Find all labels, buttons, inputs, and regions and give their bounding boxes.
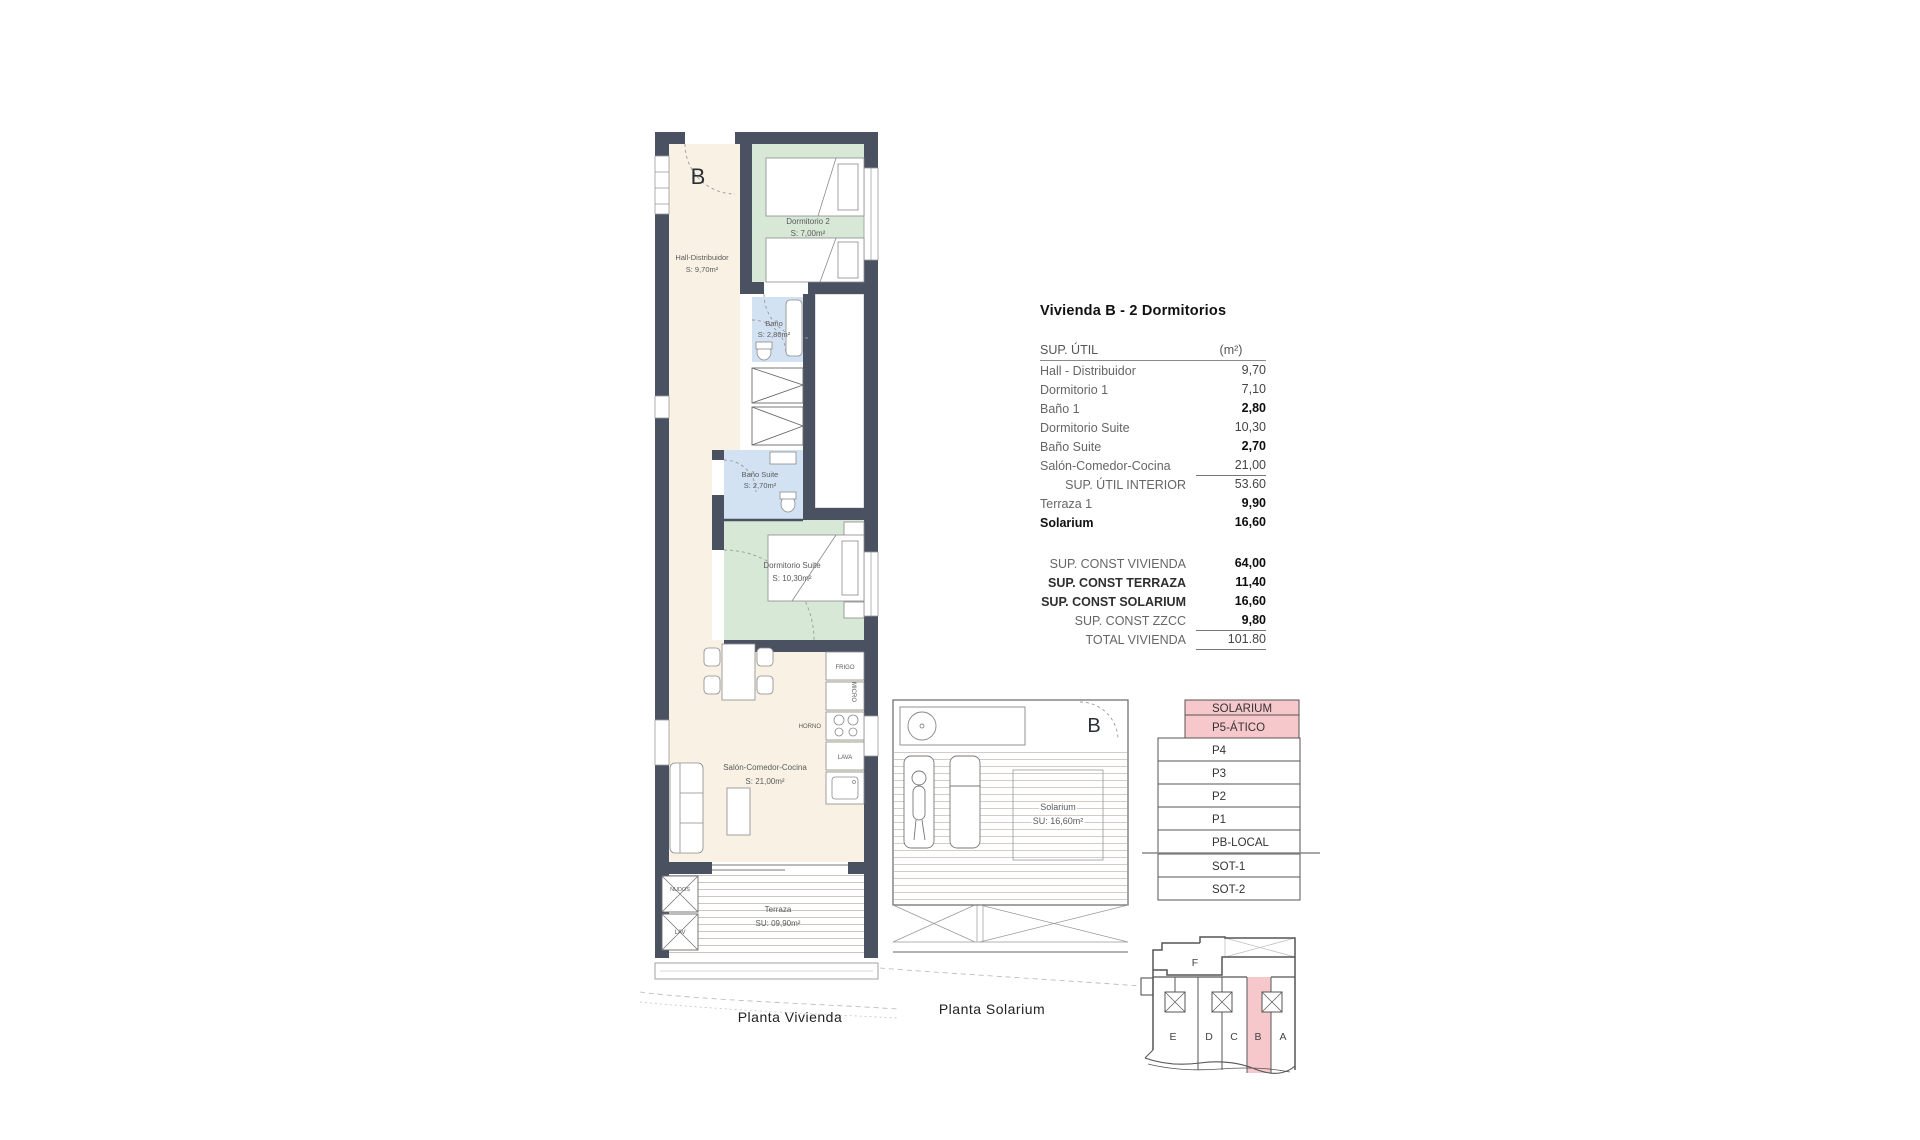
row-value: 2,80 (1196, 399, 1266, 418)
row-value: 21,00 (1196, 456, 1266, 476)
row-label: SUP. CONST SOLARIUM (1040, 595, 1196, 609)
table-row: Salón-Comedor-Cocina 21,00 (1040, 456, 1266, 475)
level-p2: P2 (1212, 791, 1226, 803)
row-value: 53.60 (1196, 475, 1266, 494)
keyplan-unit-a: A (1279, 1031, 1286, 1043)
table-row: TOTAL VIVIENDA 101.80 (1040, 630, 1266, 649)
row-label: Solarium (1040, 516, 1196, 530)
row-value: 9,90 (1196, 494, 1266, 513)
row-value: 64,00 (1196, 554, 1266, 573)
kitchen-frigo-label: FRIGO (836, 665, 855, 671)
table-row: Dormitorio Suite 10,30 (1040, 418, 1266, 437)
table-row: SUP. CONST TERRAZA 11,40 (1040, 573, 1266, 592)
hall-area: S: 9,70m² (686, 265, 719, 274)
table-header-label: SUP. ÚTIL (1040, 343, 1098, 357)
row-label: Hall - Distribuidor (1040, 364, 1196, 378)
row-value: 2,70 (1196, 437, 1266, 456)
row-label: SUP. CONST ZZCC (1040, 614, 1196, 628)
row-value: 16,60 (1196, 592, 1266, 611)
area-table: Vivienda B - 2 Dormitorios SUP. ÚTIL (m²… (1040, 303, 1266, 649)
banosuite-area: S: 2,70m² (744, 481, 777, 490)
row-label: Dormitorio Suite (1040, 421, 1196, 435)
keyplan-label-f: F (1192, 957, 1198, 969)
kitchen-horno-label: HORNO (799, 724, 822, 730)
level-p1: P1 (1212, 814, 1226, 826)
plan-caption: Planta Vivienda (738, 1009, 843, 1025)
banosuite-name: Baño Suite (742, 470, 779, 479)
level-p3: P3 (1212, 768, 1226, 780)
hall-name: Hall-Distribuidor (675, 253, 729, 262)
key-plan: F E D C B A (1140, 930, 1360, 1115)
table-row: SUP. CONST SOLARIUM 16,60 (1040, 592, 1266, 611)
solarium-caption: Planta Solarium (939, 1001, 1045, 1017)
wardrobes (752, 368, 803, 445)
solarium-name: Solarium (1040, 802, 1076, 812)
table-rows: Hall - Distribuidor 9,70 Dormitorio 1 7,… (1040, 361, 1266, 649)
keyplan-unit-c: C (1230, 1031, 1238, 1043)
table-row: Dormitorio 1 7,10 (1040, 380, 1266, 399)
table-row: Terraza 1 9,90 (1040, 494, 1266, 513)
bano1-name: Baño (765, 319, 783, 328)
keyplan-unit-b-highlight (1247, 977, 1271, 1073)
solarium-area: SU: 16,60m² (1033, 816, 1084, 826)
level-sot2: SOT-2 (1212, 884, 1245, 896)
row-label: Salón-Comedor-Cocina (1040, 459, 1196, 473)
plan-unit-letter: B (691, 164, 706, 189)
table-header: SUP. ÚTIL (m²) (1040, 343, 1266, 361)
solarium-unit-letter: B (1087, 715, 1100, 737)
table-row: SUP. CONST VIVIENDA 64,00 (1040, 554, 1266, 573)
row-value: 7,10 (1196, 380, 1266, 399)
solarium-plan: B Solarium SU: 16,60m² Planta Solarium (880, 690, 1150, 1025)
terrace-slider (712, 865, 848, 870)
kitchen-counter (826, 652, 864, 804)
row-value: 101.80 (1196, 630, 1266, 650)
floor-plan: B Hall-Distribuidor S: 9,70m² Dormitorio… (640, 120, 900, 1040)
table-row: SUP. CONST ZZCC 9,80 (1040, 611, 1266, 630)
table-row: Baño Suite 2,70 (1040, 437, 1266, 456)
table-row: SUP. ÚTIL INTERIOR 53.60 (1040, 475, 1266, 494)
salon-name: Salón-Comedor-Cocina (723, 763, 807, 772)
row-label: Baño Suite (1040, 440, 1196, 454)
solarium-counter (900, 707, 1025, 745)
table-row: Hall - Distribuidor 9,70 (1040, 361, 1266, 380)
page-title: Vivienda B - 2 Dormitorios (1040, 303, 1266, 319)
row-label: Baño 1 (1040, 402, 1196, 416)
table-row: Baño 1 2,80 (1040, 399, 1266, 418)
sketch-line (880, 968, 1140, 986)
kitchen-micro-label: MICRO (850, 682, 856, 702)
structure-below (893, 905, 1128, 942)
keyplan-hatch (1225, 938, 1295, 957)
row-label: SUP. ÚTIL INTERIOR (1040, 478, 1196, 492)
keyplan-unit-e: E (1169, 1031, 1176, 1043)
keyplan-unit-b: B (1254, 1031, 1261, 1043)
dorm2-area: S: 7,00m² (791, 229, 826, 238)
salon-area: S: 21,00m² (745, 777, 784, 786)
kitchen-lava-label: LAVA (838, 755, 852, 761)
row-value: 9,80 (1196, 611, 1266, 631)
keyplan-unit-d: D (1205, 1031, 1213, 1043)
row-value: 16,60 (1196, 513, 1266, 532)
level-pb-local: PB-LOCAL (1212, 837, 1269, 849)
terraza-area: SU: 09,90m² (756, 919, 801, 928)
row-value: 9,70 (1196, 361, 1266, 380)
row-value: 10,30 (1196, 418, 1266, 437)
row-label: TOTAL VIVIENDA (1040, 633, 1196, 647)
level-sot1: SOT-1 (1212, 861, 1245, 873)
table-header-unit: (m²) (1196, 343, 1266, 357)
level-p4: P4 (1212, 745, 1227, 757)
dormsuite-area: S: 10,30m² (772, 574, 811, 583)
dormsuite-name: Dormitorio Suite (763, 561, 821, 570)
level-solarium: SOLARIUM (1212, 703, 1272, 715)
row-value: 11,40 (1196, 573, 1266, 592)
stair-cores (1165, 992, 1282, 1012)
terraza-name: Terraza (765, 905, 792, 914)
row-label: Terraza 1 (1040, 497, 1196, 511)
utility-nudos-label: NUDOS (670, 887, 690, 893)
row-label: SUP. CONST VIVIENDA (1040, 557, 1196, 571)
utility-lav-label: LAV (675, 930, 686, 936)
dorm2-name: Dormitorio 2 (786, 217, 830, 226)
row-label: SUP. CONST TERRAZA (1040, 576, 1196, 590)
levels-diagram: SOLARIUM P5-ÁTICO P4 P3 P2 P1 PB-LOCAL S… (1140, 695, 1350, 910)
level-p5-atico: P5-ÁTICO (1212, 721, 1265, 734)
row-label: Dormitorio 1 (1040, 383, 1196, 397)
bano1-area: S: 2,80m² (758, 330, 791, 339)
table-row: Solarium 16,60 (1040, 513, 1266, 532)
